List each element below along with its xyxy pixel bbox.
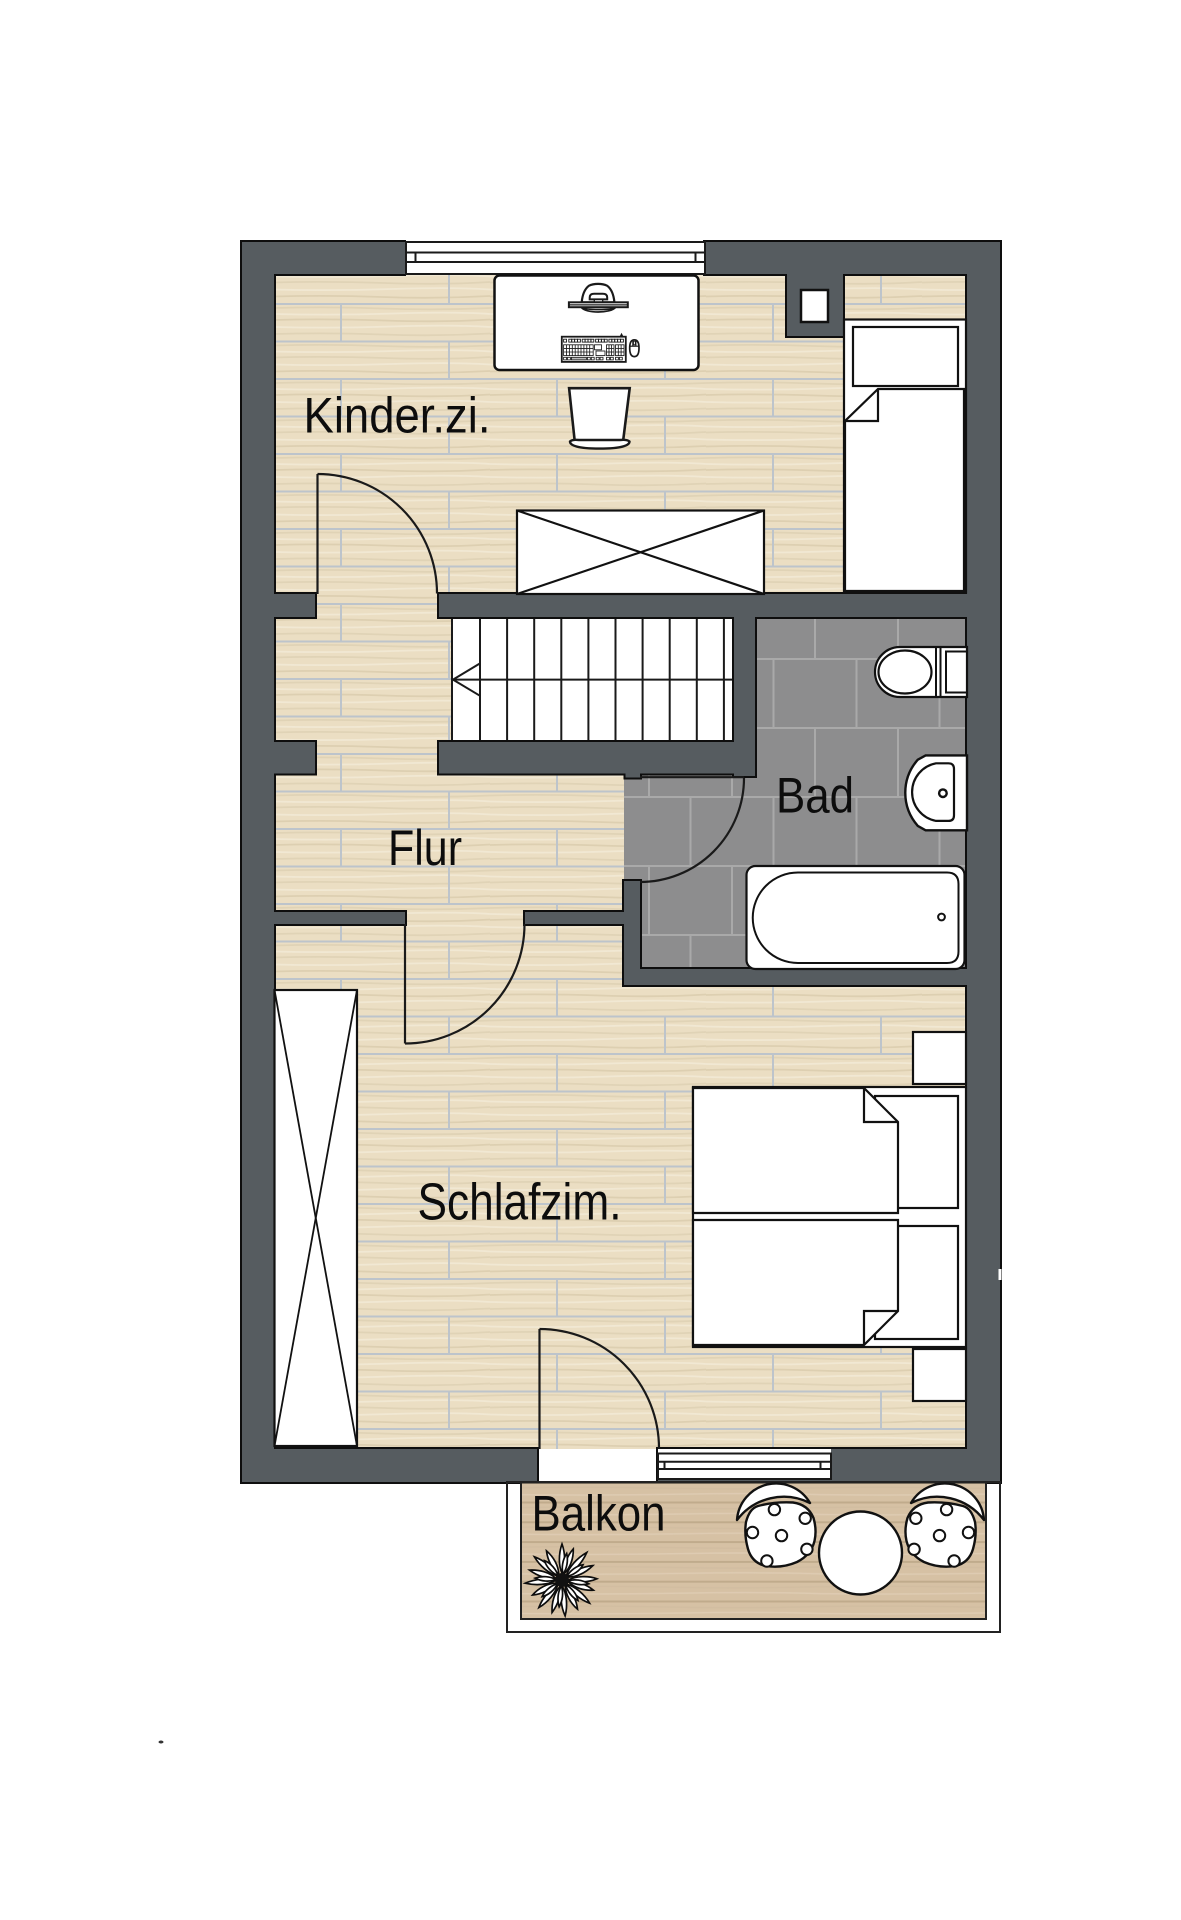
svg-text:Flur: Flur	[388, 820, 462, 876]
svg-text:Bad: Bad	[776, 768, 854, 824]
svg-text:Balkon: Balkon	[532, 1486, 666, 1542]
svg-text:Schlafzim.: Schlafzim.	[418, 1174, 622, 1232]
svg-text:Kinder.zi.: Kinder.zi.	[304, 388, 491, 444]
